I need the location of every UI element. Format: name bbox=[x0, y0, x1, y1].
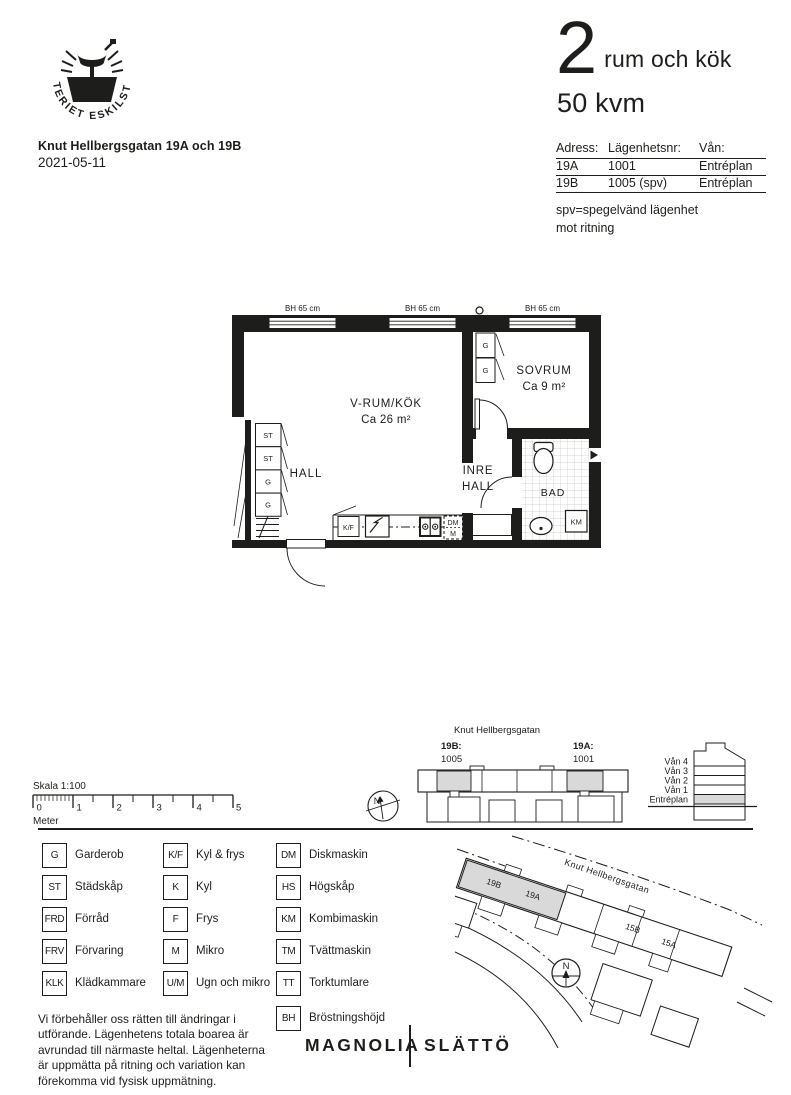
sink-icon bbox=[420, 518, 441, 537]
unit-19a-number: 1001 bbox=[573, 754, 594, 765]
disclaimer-line: är uppmätta på ritning och variation kan bbox=[38, 1058, 338, 1073]
legend-label: Tvättmaskin bbox=[309, 939, 371, 963]
rooms-label: rum och kök bbox=[604, 46, 731, 73]
legend-label: Klädkammare bbox=[75, 971, 146, 995]
col-van: Vån: bbox=[699, 141, 766, 158]
overview-street-label: Knut Hellbergsgatan bbox=[454, 725, 540, 736]
building-strip-plan bbox=[418, 766, 628, 822]
row-nr: 1005 (spv) bbox=[608, 176, 699, 192]
ruler-numbers: 0 1 2 3 4 5 bbox=[37, 803, 242, 814]
micro-label: M bbox=[450, 531, 456, 538]
row-adress: 19A bbox=[556, 159, 608, 175]
legend-label: Kyl & frys bbox=[196, 843, 245, 867]
logo-letter: G bbox=[81, 74, 102, 104]
svg-text:Vån 3: Vån 3 bbox=[664, 766, 688, 776]
legend-label: Mikro bbox=[196, 939, 224, 963]
legend-label: Diskmaskin bbox=[309, 843, 368, 867]
closet-label: ST bbox=[263, 454, 273, 463]
closet-label: G bbox=[483, 341, 489, 350]
disclaimer-line: utförande. Lägenhetens totala boarea är bbox=[38, 1027, 338, 1042]
legend-abbr: F bbox=[163, 907, 188, 932]
legend-abbr: U/M bbox=[163, 971, 188, 996]
row-van: Entréplan bbox=[699, 159, 766, 175]
floor-plan: BH 65 cm BH 65 cm BH 65 cm KM bbox=[228, 296, 618, 600]
legend-label: Ugn och mikro bbox=[196, 971, 270, 995]
room-area-vrum: Ca 26 m² bbox=[361, 414, 411, 426]
legend-abbr: TM bbox=[276, 939, 301, 964]
col-adress: Adress: bbox=[556, 141, 608, 158]
disclaimer-line: förekomma vid fysisk uppmätning. bbox=[38, 1074, 338, 1089]
building-overview: Knut Hellbergsgatan 19B: 1005 19A: 1001 … bbox=[350, 715, 770, 833]
legend-label: Kyl bbox=[196, 875, 212, 899]
room-label-bad: BAD bbox=[541, 487, 566, 499]
legend-label: Förvaring bbox=[75, 939, 124, 963]
compass-n-label: N bbox=[374, 796, 381, 806]
closet-door-swings bbox=[282, 425, 288, 516]
disclaimer-text: Vi förbehåller oss rätten till ändringar… bbox=[38, 1012, 338, 1089]
window-height-label: BH 65 cm bbox=[285, 304, 320, 313]
svg-text:2: 2 bbox=[117, 803, 122, 814]
unit-19a-label: 19A: bbox=[573, 741, 594, 752]
svg-text:Entréplan: Entréplan bbox=[649, 795, 688, 805]
document-title: Knut Hellbergsgatan 19A och 19B bbox=[38, 139, 241, 153]
floorplan-page: GJUTERIET ESKILSTUNA G Knut Hellbergsgat… bbox=[0, 0, 791, 1095]
legend-abbr: G bbox=[42, 843, 67, 868]
closet-label: G bbox=[265, 501, 271, 510]
svg-text:4: 4 bbox=[197, 803, 202, 814]
legend-label: Förråd bbox=[75, 907, 109, 931]
svg-text:3: 3 bbox=[157, 803, 162, 814]
site-map: Knut Hellbergsgatan 19B 19A 15B 15A N bbox=[455, 835, 791, 1085]
legend-abbr: K/F bbox=[163, 843, 188, 868]
apartment-headline: 2 rum och kök bbox=[556, 14, 732, 82]
svg-text:Vån 1: Vån 1 bbox=[664, 785, 688, 795]
window-height-label: BH 65 cm bbox=[525, 304, 560, 313]
entry-door bbox=[287, 540, 326, 587]
rooms-number: 2 bbox=[556, 14, 597, 82]
brand-divider bbox=[409, 1025, 411, 1067]
row-van: Entréplan bbox=[699, 176, 766, 192]
dishwasher-label: DM bbox=[448, 520, 459, 527]
sitemap-compass-n: N bbox=[563, 961, 570, 972]
scale-title: Skala 1:100 bbox=[33, 781, 86, 792]
legend-abbr: ST bbox=[42, 875, 67, 900]
closet-label: ST bbox=[263, 431, 273, 440]
closet-label: G bbox=[265, 478, 271, 487]
room-label-vrum: V-RUM/KÖK bbox=[350, 398, 422, 410]
building-elevation: Vån 4 Vån 3 Vån 2 Vån 1 Entréplan bbox=[648, 743, 757, 820]
ruler bbox=[33, 795, 233, 808]
svg-text:Vån 4: Vån 4 bbox=[664, 757, 688, 767]
sovrum-door bbox=[475, 399, 508, 429]
drain-arrow-icon bbox=[589, 448, 601, 462]
legend-label: Kombimaskin bbox=[309, 907, 378, 931]
disclaimer-line: Vi förbehåller oss rätten till ändringar… bbox=[38, 1012, 338, 1027]
window bbox=[269, 318, 576, 329]
spv-note-line2: mot ritning bbox=[556, 220, 698, 238]
fridge-freezer-label: K/F bbox=[343, 525, 354, 532]
unit-19b-number: 1005 bbox=[441, 754, 462, 765]
inre-hall-bench bbox=[473, 515, 512, 536]
room-area-sovrum: Ca 9 m² bbox=[523, 381, 566, 393]
apartment-table: Adress: Lägenhetsnr: Vån: 19A 1001 Entré… bbox=[556, 141, 766, 193]
unit-19b-label: 19B: bbox=[441, 741, 462, 752]
disclaimer-line: avrundad till närmaste heltal. Lägenhete… bbox=[38, 1043, 338, 1058]
closet-label: G bbox=[483, 366, 489, 375]
row-adress: 19B bbox=[556, 176, 608, 192]
room-label-inre-hall-1: INRE bbox=[463, 465, 494, 477]
table-row: 19B 1005 (spv) Entréplan bbox=[556, 176, 766, 193]
legend-label: Högskåp bbox=[309, 875, 354, 899]
legend-label: Garderob bbox=[75, 843, 124, 867]
row-nr: 1001 bbox=[608, 159, 699, 175]
room-label-hall: HALL bbox=[290, 468, 323, 480]
neighbor-building-right bbox=[586, 964, 705, 1048]
neighbor-building-left bbox=[455, 892, 477, 939]
legend-abbr: FRV bbox=[42, 939, 67, 964]
svg-text:0: 0 bbox=[37, 803, 42, 814]
col-lagenhetsnr: Lägenhetsnr: bbox=[608, 141, 699, 158]
legend-abbr: TT bbox=[276, 971, 301, 996]
sitemap-compass-icon: N bbox=[552, 959, 580, 987]
sovrum-closets bbox=[476, 333, 504, 383]
room-label-inre-hall-2: HALL bbox=[462, 481, 494, 493]
gjuteriet-logo: GJUTERIET ESKILSTUNA G bbox=[46, 36, 138, 134]
legend-label: Torktumlare bbox=[309, 971, 369, 995]
radiator-symbol bbox=[256, 516, 279, 538]
foundry-emblem-icon: G bbox=[61, 39, 123, 104]
washer-label: KM bbox=[571, 518, 582, 527]
legend-abbr: KM bbox=[276, 907, 301, 932]
legend-abbr: HS bbox=[276, 875, 301, 900]
legend-abbr: M bbox=[163, 939, 188, 964]
table-header-row: Adress: Lägenhetsnr: Vån: bbox=[556, 141, 766, 159]
compass-icon: N bbox=[366, 791, 400, 821]
vent-symbol bbox=[476, 307, 483, 314]
spv-note: spv=spegelvänd lägenhet mot ritning bbox=[556, 202, 698, 237]
legend-label: Städskåp bbox=[75, 875, 123, 899]
stove-icon bbox=[366, 516, 390, 537]
svg-text:1: 1 bbox=[77, 803, 82, 814]
scale-bar: Skala 1:100 0 1 2 3 bbox=[28, 776, 243, 828]
svg-text:Vån 2: Vån 2 bbox=[664, 776, 688, 786]
apartment-area: 50 kvm bbox=[557, 88, 645, 119]
window-height-label: BH 65 cm bbox=[405, 304, 440, 313]
spv-note-line1: spv=spegelvänd lägenhet bbox=[556, 202, 698, 220]
room-label-sovrum: SOVRUM bbox=[516, 365, 571, 377]
toilet-icon bbox=[534, 443, 553, 474]
legend-label: Frys bbox=[196, 907, 218, 931]
legend-abbr: DM bbox=[276, 843, 301, 868]
floor-labels: Vån 4 Vån 3 Vån 2 Vån 1 Entréplan bbox=[649, 757, 688, 805]
svg-text:5: 5 bbox=[236, 803, 241, 814]
legend-abbr: KLK bbox=[42, 971, 67, 996]
magnolia-logo: MAGNOLIA bbox=[305, 1035, 420, 1056]
document-date: 2021-05-11 bbox=[38, 155, 106, 170]
washbasin-icon bbox=[530, 518, 552, 535]
scale-unit: Meter bbox=[33, 816, 59, 827]
legend-abbr: FRD bbox=[42, 907, 67, 932]
legend-abbr: K bbox=[163, 875, 188, 900]
table-row: 19A 1001 Entréplan bbox=[556, 159, 766, 176]
